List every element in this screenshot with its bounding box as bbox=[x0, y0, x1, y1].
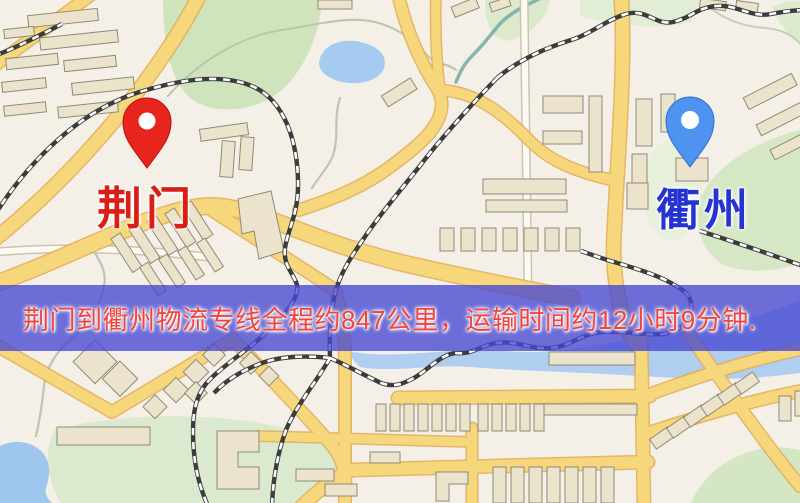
route-info-banner: 荆门到衢州物流专线全程约847公里，运输时间约12小时9分钟. bbox=[0, 285, 800, 351]
route-info-text: 荆门到衢州物流专线全程约847公里，运输时间约12小时9分钟. bbox=[0, 300, 756, 337]
map-screenshot: 荆门 衢州 荆门到衢州物流专线全程约847公里，运输时间约12小时9分钟. bbox=[0, 0, 800, 503]
map-canvas bbox=[0, 0, 800, 503]
